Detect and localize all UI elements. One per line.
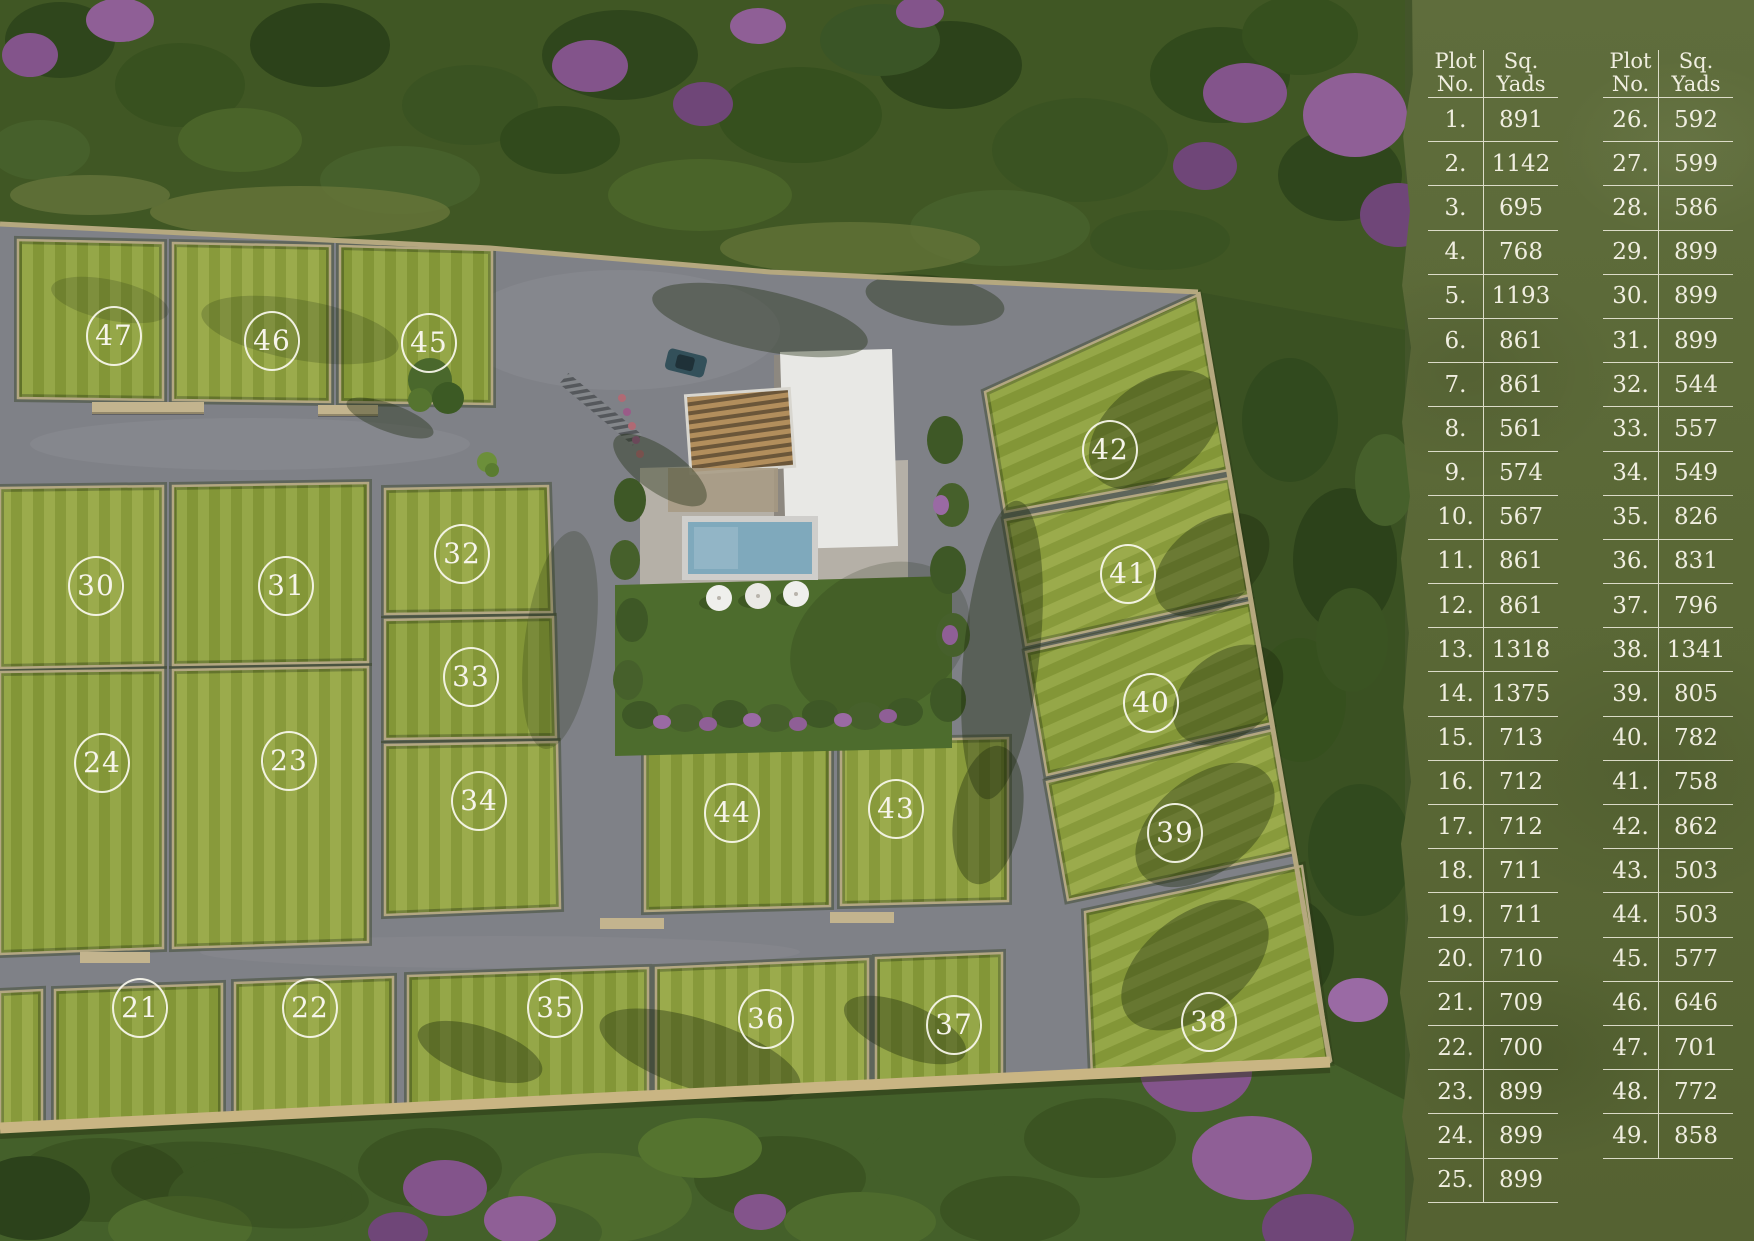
table-row: 26. 592 — [1603, 98, 1733, 142]
plot-no-cell: 42. — [1603, 805, 1659, 848]
table-row: 21. 709 — [1428, 982, 1558, 1026]
table-row: 12. 861 — [1428, 584, 1558, 628]
table-row: 41. 758 — [1603, 761, 1733, 805]
table-row: 23. 899 — [1428, 1070, 1558, 1114]
table-row: 14. 1375 — [1428, 672, 1558, 716]
plot-no-cell: 14. — [1428, 672, 1484, 715]
plot-no-cell: 27. — [1603, 142, 1659, 185]
sq-yads-cell: 899 — [1484, 1070, 1558, 1113]
plot-no-cell: 15. — [1428, 717, 1484, 760]
plot-no-cell: 45. — [1603, 938, 1659, 981]
header-sq-yads: Sq.Yads — [1484, 50, 1558, 97]
table-row: 3. 695 — [1428, 186, 1558, 230]
table-row: 22. 700 — [1428, 1026, 1558, 1070]
table-row: 11. 861 — [1428, 540, 1558, 584]
sq-yads-cell: 544 — [1659, 363, 1733, 406]
plot-no-cell: 48. — [1603, 1070, 1659, 1113]
plot-no-cell: 29. — [1603, 231, 1659, 274]
table-row: 18. 711 — [1428, 849, 1558, 893]
sq-yads-cell: 574 — [1484, 452, 1558, 495]
sq-yads-cell: 899 — [1659, 319, 1733, 362]
plot-no-cell: 22. — [1428, 1026, 1484, 1069]
sq-yads-cell: 862 — [1659, 805, 1733, 848]
plot-no-cell: 32. — [1603, 363, 1659, 406]
sq-yads-cell: 711 — [1484, 849, 1558, 892]
table-row: 48. 772 — [1603, 1070, 1733, 1114]
sq-yads-cell: 768 — [1484, 231, 1558, 274]
table-row: 30. 899 — [1603, 275, 1733, 319]
table-row: 29. 899 — [1603, 231, 1733, 275]
sq-yads-cell: 861 — [1484, 540, 1558, 583]
table-row: 36. 831 — [1603, 540, 1733, 584]
plot-no-cell: 40. — [1603, 717, 1659, 760]
sq-yads-cell: 782 — [1659, 717, 1733, 760]
table-row: 6. 861 — [1428, 319, 1558, 363]
plot-no-cell: 1. — [1428, 98, 1484, 141]
plot-no-cell: 25. — [1428, 1159, 1484, 1202]
plot-no-cell: 47. — [1603, 1026, 1659, 1069]
sq-yads-cell: 713 — [1484, 717, 1558, 760]
table-row: 42. 862 — [1603, 805, 1733, 849]
header-plot-no: PlotNo. — [1428, 50, 1484, 97]
sq-yads-cell: 772 — [1659, 1070, 1733, 1113]
table-row: 9. 574 — [1428, 452, 1558, 496]
site-plan-screenshot: .g1{fill:#8da03c}.g2{fill:#93a541}.g3{fi… — [0, 0, 1754, 1241]
plot-no-cell: 37. — [1603, 584, 1659, 627]
table-row: 35. 826 — [1603, 496, 1733, 540]
plot-no-cell: 34. — [1603, 452, 1659, 495]
header-plot-no: PlotNo. — [1603, 50, 1659, 97]
plot-no-cell: 26. — [1603, 98, 1659, 141]
sq-yads-cell: 899 — [1484, 1159, 1558, 1202]
sq-yads-cell: 899 — [1659, 275, 1733, 318]
sq-yads-cell: 503 — [1659, 849, 1733, 892]
plot-no-cell: 33. — [1603, 407, 1659, 450]
plot-table-2: PlotNo. Sq.Yads 26. 592 27. 599 28. — [1603, 50, 1733, 1159]
plot-no-cell: 8. — [1428, 407, 1484, 450]
sq-yads-cell: 891 — [1484, 98, 1558, 141]
table-row: 47. 701 — [1603, 1026, 1733, 1070]
table-row: 15. 713 — [1428, 717, 1558, 761]
table-row: 16. 712 — [1428, 761, 1558, 805]
table-row: 39. 805 — [1603, 672, 1733, 716]
table-row: 24. 899 — [1428, 1114, 1558, 1158]
table-row: 32. 544 — [1603, 363, 1733, 407]
sq-yads-cell: 899 — [1484, 1114, 1558, 1157]
table-row: 40. 782 — [1603, 717, 1733, 761]
sq-yads-cell: 710 — [1484, 938, 1558, 981]
table-row: 19. 711 — [1428, 893, 1558, 937]
table-row: 20. 710 — [1428, 938, 1558, 982]
plot-table-1: PlotNo. Sq.Yads 1. 891 2. 1142 3. — [1428, 50, 1558, 1203]
plot-no-cell: 19. — [1428, 893, 1484, 936]
sq-yads-cell: 1375 — [1484, 672, 1558, 715]
plot-no-cell: 4. — [1428, 231, 1484, 274]
table-row: 13. 1318 — [1428, 628, 1558, 672]
plot-no-cell: 2. — [1428, 142, 1484, 185]
plot-no-cell: 31. — [1603, 319, 1659, 362]
plot-no-cell: 38. — [1603, 628, 1659, 671]
plot-no-cell: 35. — [1603, 496, 1659, 539]
clubhouse-pergola — [685, 388, 794, 473]
plot-no-cell: 23. — [1428, 1070, 1484, 1113]
table-row: 38. 1341 — [1603, 628, 1733, 672]
sq-yads-cell: 711 — [1484, 893, 1558, 936]
sq-yads-cell: 700 — [1484, 1026, 1558, 1069]
plot-no-cell: 11. — [1428, 540, 1484, 583]
plot-no-cell: 12. — [1428, 584, 1484, 627]
plot-no-cell: 41. — [1603, 761, 1659, 804]
plot-no-cell: 46. — [1603, 982, 1659, 1025]
sq-yads-cell: 1142 — [1484, 142, 1558, 185]
sq-yads-cell: 831 — [1659, 540, 1733, 583]
plot-no-cell: 18. — [1428, 849, 1484, 892]
table-row: 2. 1142 — [1428, 142, 1558, 186]
sq-yads-cell: 1193 — [1484, 275, 1558, 318]
sq-yads-cell: 858 — [1659, 1114, 1733, 1157]
sq-yads-cell: 861 — [1484, 319, 1558, 362]
table-row: 46. 646 — [1603, 982, 1733, 1026]
sq-yads-cell: 709 — [1484, 982, 1558, 1025]
sq-yads-cell: 758 — [1659, 761, 1733, 804]
plot-no-cell: 9. — [1428, 452, 1484, 495]
table-row: 17. 712 — [1428, 805, 1558, 849]
table-row: 45. 577 — [1603, 938, 1733, 982]
table-row: 28. 586 — [1603, 186, 1733, 230]
table-row: 4. 768 — [1428, 231, 1558, 275]
plot-no-cell: 39. — [1603, 672, 1659, 715]
table-1-header: PlotNo. Sq.Yads — [1428, 50, 1558, 98]
table-row: 37. 796 — [1603, 584, 1733, 628]
sq-yads-cell: 557 — [1659, 407, 1733, 450]
header-sq-yads: Sq.Yads — [1659, 50, 1733, 97]
plot-no-cell: 5. — [1428, 275, 1484, 318]
table-row: 33. 557 — [1603, 407, 1733, 451]
sq-yads-cell: 1318 — [1484, 628, 1558, 671]
sq-yads-cell: 701 — [1659, 1026, 1733, 1069]
table-row: 5. 1193 — [1428, 275, 1558, 319]
plot-no-cell: 7. — [1428, 363, 1484, 406]
plot-no-cell: 21. — [1428, 982, 1484, 1025]
parasols — [699, 581, 809, 611]
sq-yads-cell: 586 — [1659, 186, 1733, 229]
table-row: 1. 891 — [1428, 98, 1558, 142]
plot-no-cell: 44. — [1603, 893, 1659, 936]
sq-yads-cell: 592 — [1659, 98, 1733, 141]
sq-yads-cell: 861 — [1484, 363, 1558, 406]
sq-yads-cell: 503 — [1659, 893, 1733, 936]
table-row: 49. 858 — [1603, 1114, 1733, 1158]
sq-yads-cell: 695 — [1484, 186, 1558, 229]
sq-yads-cell: 561 — [1484, 407, 1558, 450]
sq-yads-cell: 805 — [1659, 672, 1733, 715]
plot-no-cell: 17. — [1428, 805, 1484, 848]
plot-no-cell: 16. — [1428, 761, 1484, 804]
table-row: 8. 561 — [1428, 407, 1558, 451]
sq-yads-cell: 599 — [1659, 142, 1733, 185]
sq-yads-cell: 1341 — [1659, 628, 1733, 671]
sq-yads-cell: 577 — [1659, 938, 1733, 981]
plot-no-cell: 43. — [1603, 849, 1659, 892]
plot-no-cell: 28. — [1603, 186, 1659, 229]
table-row: 27. 599 — [1603, 142, 1733, 186]
plot-no-cell: 30. — [1603, 275, 1659, 318]
table-2-header: PlotNo. Sq.Yads — [1603, 50, 1733, 98]
sq-yads-cell: 712 — [1484, 761, 1558, 804]
table-row: 25. 899 — [1428, 1159, 1558, 1203]
sq-yads-cell: 826 — [1659, 496, 1733, 539]
plot-table-panel: PlotNo. Sq.Yads 1. 891 2. 1142 3. — [1396, 0, 1754, 1241]
plot-no-cell: 49. — [1603, 1114, 1659, 1157]
table-row: 43. 503 — [1603, 849, 1733, 893]
plot-no-cell: 3. — [1428, 186, 1484, 229]
plot-no-cell: 13. — [1428, 628, 1484, 671]
table-row: 7. 861 — [1428, 363, 1558, 407]
sq-yads-cell: 899 — [1659, 231, 1733, 274]
plot-no-cell: 6. — [1428, 319, 1484, 362]
plot-no-cell: 36. — [1603, 540, 1659, 583]
table-row: 44. 503 — [1603, 893, 1733, 937]
plot-no-cell: 10. — [1428, 496, 1484, 539]
table-row: 34. 549 — [1603, 452, 1733, 496]
table-row: 10. 567 — [1428, 496, 1558, 540]
sq-yads-cell: 567 — [1484, 496, 1558, 539]
sq-yads-cell: 712 — [1484, 805, 1558, 848]
sq-yads-cell: 796 — [1659, 584, 1733, 627]
plot-no-cell: 20. — [1428, 938, 1484, 981]
sq-yads-cell: 549 — [1659, 452, 1733, 495]
sq-yads-cell: 861 — [1484, 584, 1558, 627]
sq-yads-cell: 646 — [1659, 982, 1733, 1025]
table-row: 31. 899 — [1603, 319, 1733, 363]
plot-no-cell: 24. — [1428, 1114, 1484, 1157]
